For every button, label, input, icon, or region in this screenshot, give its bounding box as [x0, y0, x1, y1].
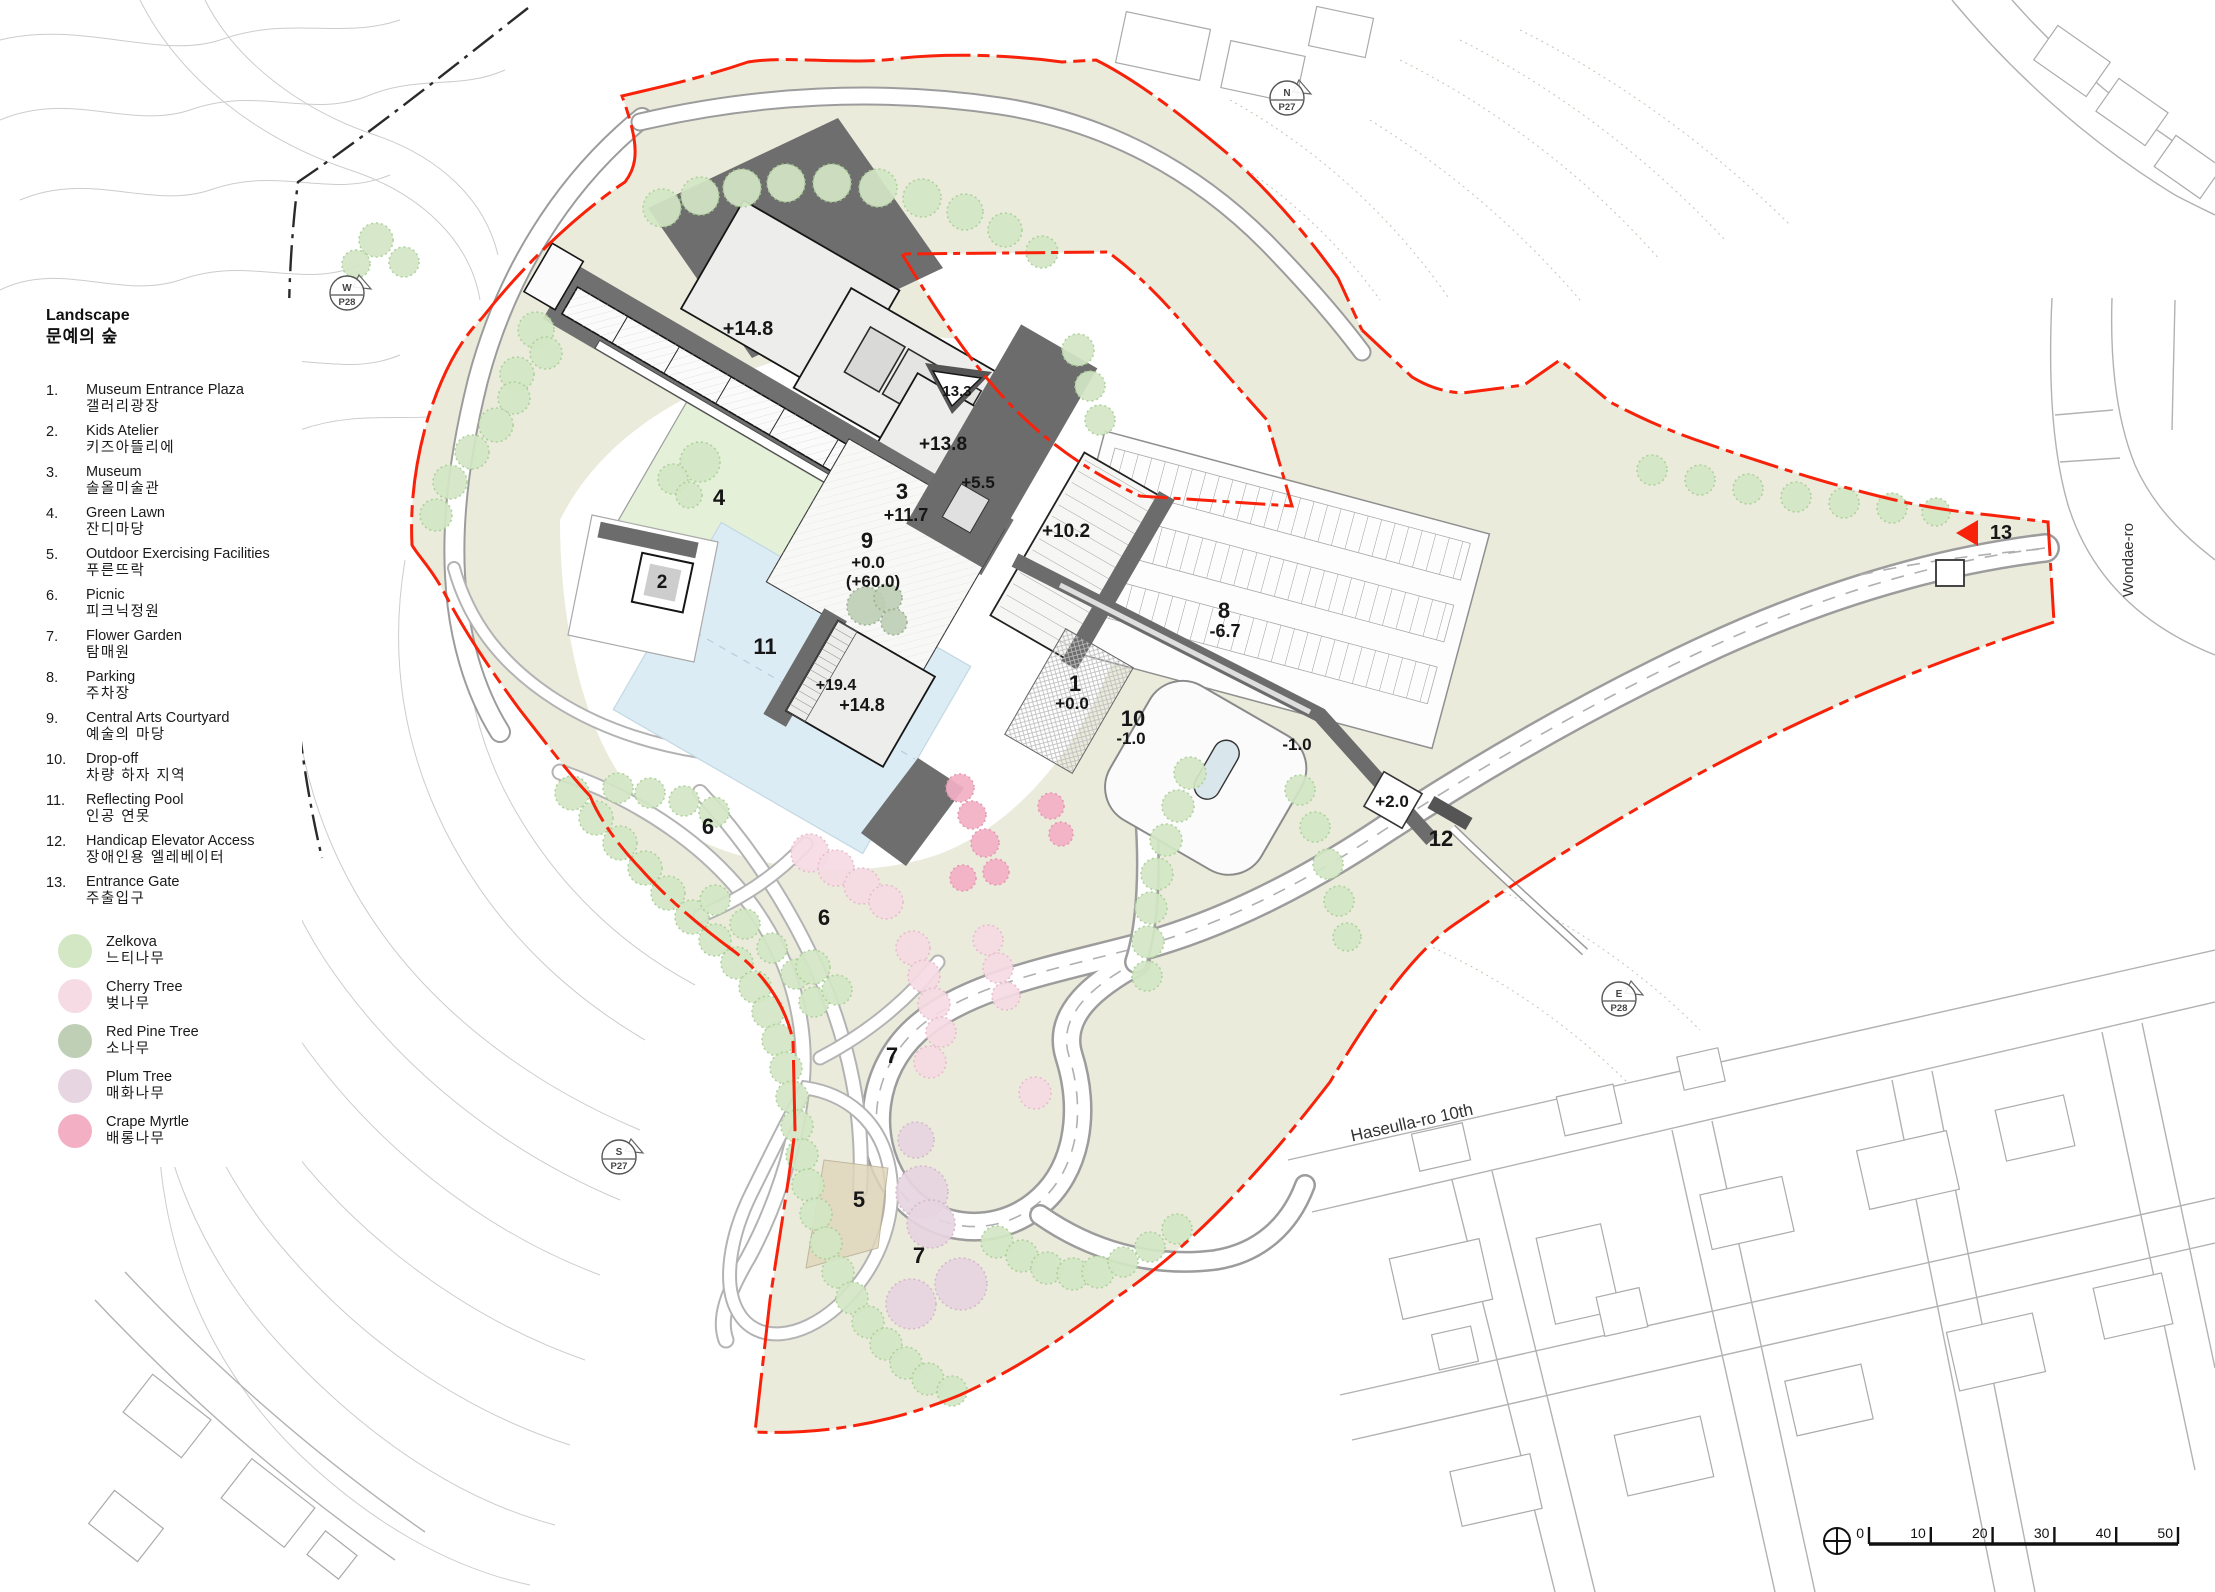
legend-item: 4.Green Lawn잔디마당	[46, 505, 296, 539]
tree-icon	[628, 851, 662, 885]
legend-item-ko: 차량 하자 지역	[86, 768, 186, 785]
tree-icon	[947, 194, 983, 230]
legend-item: 9.Central Arts Courtyard예술의 마당	[46, 710, 296, 744]
tree-icon	[479, 408, 513, 442]
plan-label: (+60.0)	[846, 572, 900, 591]
legend-item-en: Drop-off	[86, 751, 186, 768]
tree-icon	[770, 1052, 802, 1084]
legend-item-number: 10.	[46, 751, 86, 785]
compass-page-ref: P27	[1279, 102, 1296, 113]
tree-icon	[530, 337, 562, 369]
gate-kiosk	[1936, 560, 1964, 586]
plan-label: 11	[753, 634, 776, 659]
tree-icon	[1733, 474, 1763, 504]
legend-item: 12.Handicap Elevator Access장애인용 엘레베이터	[46, 833, 296, 867]
tree-icon	[420, 499, 452, 531]
legend-item: 7.Flower Garden탐매원	[46, 628, 296, 662]
legend-item-en: Handicap Elevator Access	[86, 833, 254, 850]
tree-icon	[1132, 961, 1162, 991]
tree-icon	[1781, 482, 1811, 512]
tree-icon	[792, 1169, 824, 1201]
compass-direction: E	[1616, 989, 1623, 1000]
tree-icon	[935, 1258, 987, 1310]
tree-icon	[903, 179, 941, 217]
tree-icon	[1829, 488, 1859, 518]
tree-icon	[926, 1017, 956, 1047]
legend-item-ko: 잔디마당	[86, 522, 165, 539]
tree-icon	[869, 885, 903, 919]
legend-item-ko: 탐매원	[86, 645, 182, 662]
legend-item-number: 2.	[46, 423, 86, 457]
tree-name-en: Plum Tree	[106, 1069, 172, 1086]
tree-icon	[810, 1227, 842, 1259]
tree-name-ko: 소나무	[106, 1041, 199, 1058]
tree-icon	[1141, 858, 1173, 890]
legend-item-ko: 피크닉정원	[86, 604, 160, 621]
tree-icon	[555, 776, 589, 810]
tree-swatch-icon	[58, 1024, 92, 1058]
tree-name-ko: 벚나무	[106, 996, 183, 1013]
plan-label: 1	[1069, 671, 1081, 696]
tree-icon	[359, 223, 393, 257]
tree-swatch-icon	[58, 979, 92, 1013]
plan-label: 9	[861, 528, 873, 553]
tree-name-ko: 느티나무	[106, 951, 165, 968]
tree-icon	[796, 950, 830, 984]
plan-label: -6.7	[1209, 621, 1240, 641]
legend-item-en: Museum Entrance Plaza	[86, 382, 244, 399]
tree-icon	[669, 786, 699, 816]
legend-item-ko: 갤러리광장	[86, 399, 244, 416]
tree-icon	[389, 247, 419, 277]
compass-direction: W	[342, 283, 352, 294]
legend-panel: Landscape 문예의 숲 1.Museum Entrance Plaza갤…	[40, 298, 302, 1167]
legend-item-ko: 장애인용 엘레베이터	[86, 850, 254, 867]
tree-name-en: Cherry Tree	[106, 979, 183, 996]
legend-item-en: Green Lawn	[86, 505, 165, 522]
plan-label: -1.0	[1116, 729, 1145, 748]
plan-label: 6	[818, 905, 830, 930]
legend-item: 13.Entrance Gate주출입구	[46, 874, 296, 908]
compass-marker-n: NP27	[1270, 80, 1311, 115]
tree-icon	[950, 865, 976, 891]
tree-icon	[1324, 886, 1354, 916]
plan-label: 5	[853, 1187, 865, 1212]
legend-item-number: 3.	[46, 464, 86, 498]
plan-label: 7	[913, 1243, 925, 1268]
tree-icon	[908, 960, 940, 992]
tree-icon	[1108, 1247, 1138, 1277]
legend-item-ko: 푸른뜨락	[86, 563, 270, 580]
plan-label: +5.5	[961, 473, 995, 492]
legend-item-ko: 예술의 마당	[86, 727, 229, 744]
tree-icon	[973, 925, 1003, 955]
plan-label: 2	[657, 572, 668, 593]
tree-name-ko: 배롱나무	[106, 1131, 189, 1148]
tree-icon	[757, 933, 787, 963]
tree-icon	[433, 465, 467, 499]
tree-icon	[1300, 812, 1330, 842]
scale-tick-label: 40	[2096, 1525, 2112, 1541]
plan-label: +2.0	[1375, 792, 1409, 811]
legend-item-ko: 주출입구	[86, 891, 180, 908]
tree-icon	[1285, 775, 1315, 805]
legend-item-en: Kids Atelier	[86, 423, 175, 440]
tree-icon	[455, 435, 489, 469]
tree-icon	[881, 609, 907, 635]
tree-icon	[730, 909, 760, 939]
site-plan-map: +14.813.3+13.8+5.53+11.79+0.0(+60.0)+10.…	[0, 0, 2215, 1592]
tree-icon	[822, 975, 852, 1005]
legend-item: 5.Outdoor Exercising Facilities푸른뜨락	[46, 546, 296, 580]
tree-icon	[1085, 405, 1115, 435]
compass-page-ref: P28	[1611, 1003, 1628, 1014]
plan-label: 7	[886, 1043, 898, 1068]
tree-icon	[767, 164, 805, 202]
scale-tick-label: 50	[2157, 1525, 2173, 1541]
plan-label: 10	[1121, 706, 1145, 731]
compass-page-ref: P27	[611, 1161, 628, 1172]
legend-item-en: Outdoor Exercising Facilities	[86, 546, 270, 563]
legend-item-en: Central Arts Courtyard	[86, 710, 229, 727]
plan-label: +0.0	[1055, 694, 1089, 713]
tree-icon	[342, 250, 370, 278]
plan-label: 8	[1218, 598, 1230, 623]
tree-icon	[1150, 824, 1182, 856]
plan-label: +14.8	[839, 695, 885, 715]
tree-swatch-icon	[58, 1114, 92, 1148]
plan-label: +13.8	[919, 434, 967, 455]
tree-icon	[1162, 790, 1194, 822]
tree-icon	[1637, 455, 1667, 485]
plan-label: 12	[1429, 826, 1453, 851]
scale-tick-label: 20	[1972, 1525, 1988, 1541]
site-plan-page: +14.813.3+13.8+5.53+11.79+0.0(+60.0)+10.…	[0, 0, 2215, 1592]
tree-icon	[681, 177, 719, 215]
tree-icon	[971, 829, 999, 857]
tree-icon	[958, 801, 986, 829]
legend-item: 8.Parking주차장	[46, 669, 296, 703]
plan-label: +10.2	[1042, 521, 1090, 542]
tree-swatch-icon	[58, 934, 92, 968]
tree-icon	[907, 1200, 955, 1248]
legend-item: 2.Kids Atelier키즈아뜰리에	[46, 423, 296, 457]
legend-item-ko: 솔올미술관	[86, 481, 160, 498]
plan-label: 13	[1990, 522, 2012, 544]
tree-icon	[1019, 1077, 1051, 1109]
legend-item-number: 8.	[46, 669, 86, 703]
legend-item-en: Reflecting Pool	[86, 792, 184, 809]
legend-item-number: 5.	[46, 546, 86, 580]
tree-icon	[643, 189, 681, 227]
tree-icon	[992, 982, 1020, 1010]
tree-icon	[983, 953, 1013, 983]
tree-icon	[1038, 793, 1064, 819]
compass-marker-e: EP28	[1602, 981, 1643, 1016]
scale-tick-label: 30	[2034, 1525, 2050, 1541]
compass-direction: S	[616, 1147, 623, 1158]
legend-item-en: Parking	[86, 669, 135, 686]
legend-item-ko: 키즈아뜰리에	[86, 440, 175, 457]
legend-item-en: Flower Garden	[86, 628, 182, 645]
tree-icon	[676, 482, 702, 508]
plan-label: +0.0	[851, 553, 885, 572]
plan-label: 13.3	[942, 383, 971, 400]
tree-icon	[1132, 926, 1164, 958]
tree-icon	[1075, 371, 1105, 401]
plan-label: +19.4	[816, 677, 857, 694]
tree-legend-item: Crape Myrtle배롱나무	[58, 1114, 296, 1148]
tree-icon	[1049, 822, 1073, 846]
tree-icon	[1174, 757, 1206, 789]
tree-name-en: Zelkova	[106, 934, 165, 951]
legend-item-ko: 인공 연못	[86, 809, 184, 826]
tree-icon	[1162, 1214, 1192, 1244]
legend-item-number: 9.	[46, 710, 86, 744]
tree-name-en: Crape Myrtle	[106, 1114, 189, 1131]
legend-item: 10.Drop-off차량 하자 지역	[46, 751, 296, 785]
tree-icon	[1922, 498, 1950, 526]
tree-legend-item: Cherry Tree벚나무	[58, 979, 296, 1013]
tree-swatch-icon	[58, 1069, 92, 1103]
tree-icon	[918, 988, 950, 1020]
plan-label: 4	[713, 485, 726, 510]
legend-item-number: 1.	[46, 382, 86, 416]
scale-tick-label: 10	[1910, 1525, 1926, 1541]
legend-item: 1.Museum Entrance Plaza갤러리광장	[46, 382, 296, 416]
compass-page-ref: P28	[339, 297, 356, 308]
tree-icon	[1313, 849, 1343, 879]
tree-icon	[700, 885, 730, 915]
legend-item: 11.Reflecting Pool인공 연못	[46, 792, 296, 826]
tree-icon	[988, 213, 1022, 247]
tree-legend-item: Red Pine Tree소나무	[58, 1024, 296, 1058]
tree-legend: Zelkova느티나무Cherry Tree벚나무Red Pine Tree소나…	[58, 934, 296, 1148]
plan-label: 6	[702, 814, 714, 839]
tree-icon	[781, 1110, 813, 1142]
tree-icon	[914, 1046, 946, 1078]
compass-direction: N	[1283, 88, 1290, 99]
tree-icon	[1333, 923, 1361, 951]
legend-title: Landscape	[46, 306, 296, 326]
legend-item: 6.Picnic피크닉정원	[46, 587, 296, 621]
legend-item-en: Entrance Gate	[86, 874, 180, 891]
tree-icon	[983, 859, 1009, 885]
tree-legend-item: Zelkova느티나무	[58, 934, 296, 968]
tree-name-en: Red Pine Tree	[106, 1024, 199, 1041]
scale-bar: 01020304050	[1824, 1525, 2178, 1554]
tree-icon	[603, 773, 633, 803]
plan-label: 3	[896, 479, 908, 504]
tree-icon	[886, 1279, 936, 1329]
tree-icon	[1135, 892, 1167, 924]
legend-item-number: 11.	[46, 792, 86, 826]
tree-icon	[859, 169, 897, 207]
tree-icon	[635, 778, 665, 808]
legend-item-number: 6.	[46, 587, 86, 621]
legend-item-en: Museum	[86, 464, 160, 481]
tree-icon	[800, 1198, 832, 1230]
plan-label: -1.0	[1282, 735, 1311, 754]
tree-icon	[1062, 334, 1094, 366]
tree-icon	[946, 774, 974, 802]
scale-tick-label: 0	[1856, 1525, 1864, 1541]
tree-icon	[898, 1122, 934, 1158]
tree-icon	[723, 169, 761, 207]
plan-label: +11.7	[884, 505, 929, 525]
tree-icon	[1685, 465, 1715, 495]
legend-item-en: Picnic	[86, 587, 160, 604]
legend-item: 3.Museum솔올미술관	[46, 464, 296, 498]
legend-subtitle: 문예의 숲	[46, 326, 296, 348]
tree-icon	[776, 1081, 808, 1113]
road-label: Wondae-ro	[2120, 523, 2137, 597]
tree-icon	[1135, 1232, 1165, 1262]
tree-icon	[813, 164, 851, 202]
tree-name-ko: 매화나무	[106, 1086, 172, 1103]
legend-item-ko: 주차장	[86, 686, 135, 703]
compass-marker-s: SP27	[602, 1139, 643, 1174]
legend-item-number: 12.	[46, 833, 86, 867]
plan-label: +14.8	[723, 318, 774, 340]
legend-item-number: 4.	[46, 505, 86, 539]
tree-legend-item: Plum Tree매화나무	[58, 1069, 296, 1103]
compass-marker-w: WP28	[330, 275, 371, 310]
legend-item-number: 7.	[46, 628, 86, 662]
legend-items: 1.Museum Entrance Plaza갤러리광장2.Kids Ateli…	[46, 382, 296, 908]
legend-item-number: 13.	[46, 874, 86, 908]
